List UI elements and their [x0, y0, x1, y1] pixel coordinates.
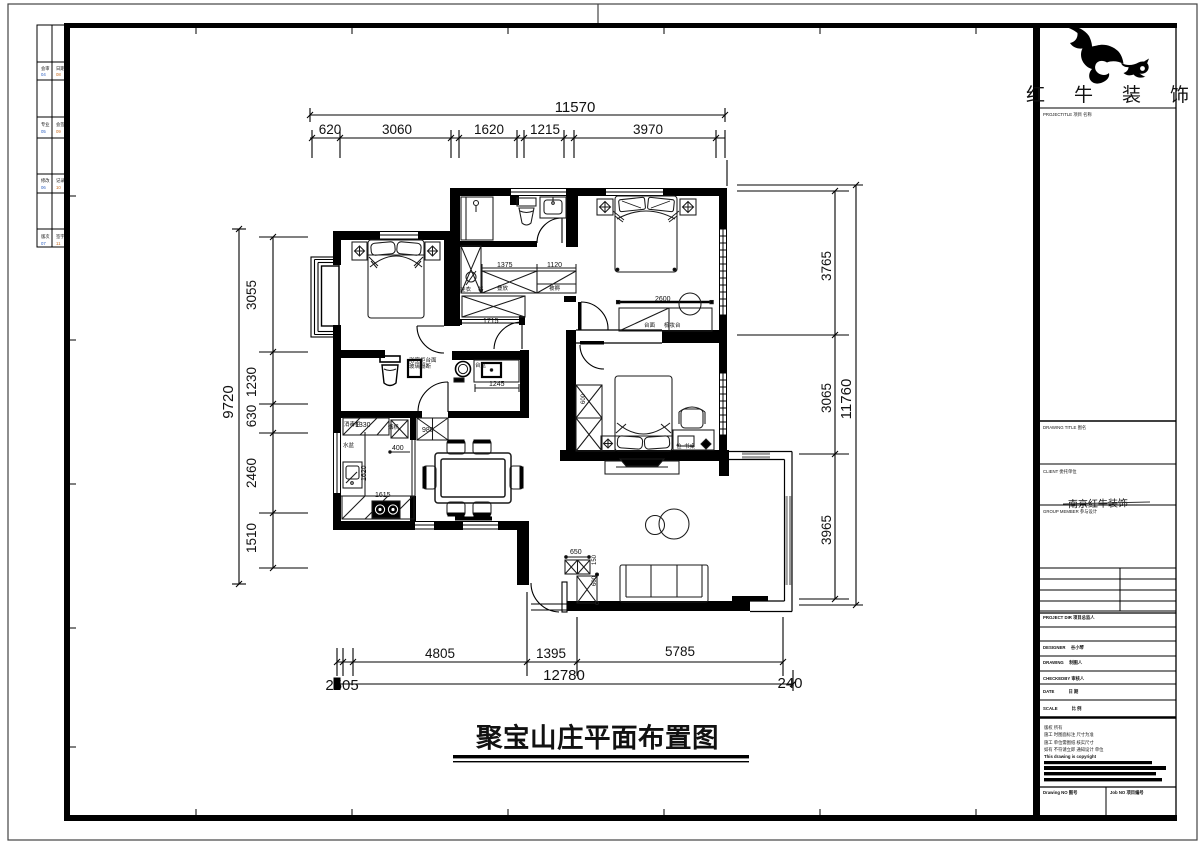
svg-text:600: 600	[581, 393, 587, 404]
svg-text:台面: 台面	[644, 321, 656, 329]
svg-text:980: 980	[422, 427, 434, 434]
svg-text:This drawing is copyright: This drawing is copyright	[1044, 754, 1097, 759]
svg-text:浴室柜台面: 浴室柜台面	[409, 356, 437, 364]
svg-text:PROJECTITLE 项目 名称: PROJECTITLE 项目 名称	[1043, 111, 1092, 118]
svg-text:06: 06	[41, 185, 46, 190]
svg-text:650: 650	[570, 549, 582, 556]
svg-text:位: 位	[676, 442, 682, 450]
svg-text:04: 04	[41, 72, 46, 77]
svg-text:DRAWING TITLE 图名: DRAWING TITLE 图名	[1043, 424, 1086, 431]
svg-text:DESIGNER 谷小琴: DESIGNER 谷小琴	[1043, 644, 1085, 651]
svg-text:台盆: 台盆	[475, 361, 487, 369]
svg-text:被褥: 被褥	[549, 284, 561, 292]
svg-text:聚宝山庄平面布置图: 聚宝山庄平面布置图	[475, 723, 719, 753]
svg-text:620: 620	[319, 122, 342, 137]
svg-text:挂衣: 挂衣	[460, 285, 472, 293]
svg-text:5785: 5785	[665, 644, 695, 659]
svg-text:签字: 签字	[56, 233, 65, 239]
svg-text:11: 11	[56, 241, 61, 246]
svg-text:3060: 3060	[382, 122, 412, 137]
svg-text:DRAWING 制图人: DRAWING 制图人	[1043, 659, 1083, 666]
svg-text:1615: 1615	[375, 492, 391, 499]
svg-text:玻璃隔断: 玻璃隔断	[409, 362, 432, 370]
svg-text:3970: 3970	[633, 122, 663, 137]
svg-text:1620: 1620	[361, 465, 368, 481]
svg-text:3965: 3965	[819, 515, 834, 545]
svg-text:会审: 会审	[41, 65, 50, 72]
svg-text:11760: 11760	[838, 379, 855, 420]
svg-text:08: 08	[56, 72, 61, 77]
svg-text:1230: 1230	[244, 367, 259, 397]
svg-text:10: 10	[56, 185, 61, 190]
svg-text:3765: 3765	[819, 251, 834, 281]
svg-text:CHECKEDBY 审核人: CHECKEDBY 审核人	[1043, 675, 1085, 682]
svg-text:2600: 2600	[655, 296, 671, 303]
svg-text:格: 格	[478, 285, 484, 293]
svg-text:3055: 3055	[244, 280, 259, 310]
svg-text:SCALE 比 例: SCALE 比 例	[1043, 705, 1082, 712]
svg-text:12780: 12780	[543, 667, 585, 684]
svg-text:版权 所有: 版权 所有	[1044, 724, 1063, 731]
svg-text:修改: 修改	[41, 177, 50, 184]
svg-text:施工 时图面标注 尺寸为准: 施工 时图面标注 尺寸为准	[1044, 731, 1094, 738]
svg-text:240: 240	[777, 675, 802, 692]
svg-text:Drawing NO 图号: Drawing NO 图号	[1043, 789, 1078, 796]
svg-text:会签: 会签	[56, 121, 65, 128]
svg-text:07: 07	[41, 241, 46, 246]
svg-text:叠放: 叠放	[497, 284, 509, 292]
svg-text:09: 09	[56, 129, 61, 134]
svg-text:1245: 1245	[489, 381, 505, 388]
svg-text:3065: 3065	[819, 383, 834, 413]
svg-text:红牛装饰: 红牛装饰	[1026, 84, 1200, 106]
svg-text:如有 不符请立即 通知设计 单位: 如有 不符请立即 通知设计 单位	[1044, 746, 1104, 753]
svg-text:2460: 2460	[244, 458, 259, 488]
svg-text:1620: 1620	[474, 122, 504, 137]
svg-text:Job NO 项目编号: Job NO 项目编号	[1110, 789, 1144, 796]
svg-text:11570: 11570	[555, 99, 596, 116]
svg-text:专业: 专业	[41, 121, 50, 128]
svg-text:水盆: 水盆	[343, 441, 355, 449]
svg-text:4805: 4805	[425, 646, 455, 661]
svg-text:1510: 1510	[244, 523, 259, 553]
svg-text:05: 05	[41, 129, 46, 134]
svg-text:1215: 1215	[530, 122, 560, 137]
svg-text:施工 单位需图纸 核实尺寸: 施工 单位需图纸 核实尺寸	[1044, 739, 1094, 746]
svg-text:2505: 2505	[325, 677, 358, 694]
svg-text:DATE 日 期: DATE 日 期	[1043, 688, 1079, 695]
svg-text:1395: 1395	[536, 646, 566, 661]
svg-text:消毒柜: 消毒柜	[344, 420, 361, 428]
svg-text:记录: 记录	[56, 177, 65, 183]
svg-text:400: 400	[392, 445, 404, 452]
svg-text:书桌: 书桌	[684, 442, 696, 450]
svg-text:版次: 版次	[41, 233, 50, 240]
svg-text:1120: 1120	[547, 262, 562, 269]
svg-text:PROJECT DIR 项目总监人: PROJECT DIR 项目总监人	[1043, 614, 1095, 621]
svg-text:1375: 1375	[497, 262, 513, 269]
svg-text:烟机: 烟机	[388, 423, 400, 431]
svg-text:150: 150	[592, 554, 598, 565]
svg-text:9720: 9720	[220, 385, 237, 418]
svg-text:630: 630	[244, 405, 259, 428]
svg-text:GROUP MEMBER 参与设计: GROUP MEMBER 参与设计	[1043, 508, 1098, 515]
svg-text:600: 600	[592, 575, 598, 586]
svg-text:梳妆台: 梳妆台	[664, 321, 681, 329]
svg-text:1715: 1715	[483, 318, 499, 325]
svg-text:CLIENT 委托单位: CLIENT 委托单位	[1043, 468, 1077, 475]
